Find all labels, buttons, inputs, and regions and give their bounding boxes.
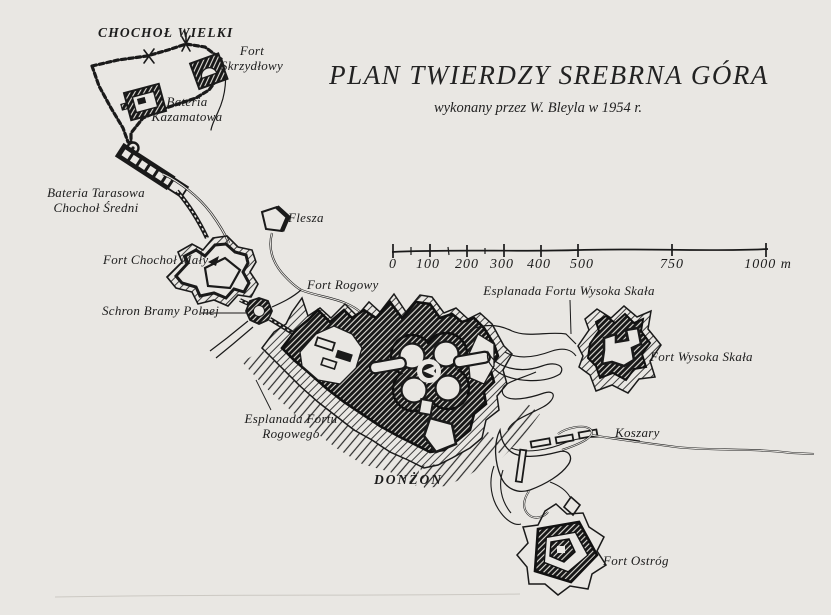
label-fort-rogowy: Fort Rogowy bbox=[307, 278, 379, 291]
fort-wysoka-skala-plan bbox=[578, 306, 661, 393]
label-fort-wysoka-skala: Fort Wysoka Skała bbox=[650, 350, 753, 363]
fort-ostrog-plan bbox=[491, 466, 606, 595]
scan-artifact-line bbox=[55, 594, 520, 597]
label-fort-skrzydlowy: Fort Skrzydłowy bbox=[221, 44, 283, 74]
barracks-building bbox=[556, 434, 574, 443]
scale-tick-500: 500 bbox=[570, 257, 594, 273]
scanned-map-page: PLAN TWIERDZY SREBRNA GÓRA wykonany prze… bbox=[0, 0, 831, 615]
label-bateria-tarasowa: Bateria Tarasowa Chochoł Średni bbox=[47, 186, 145, 216]
label-chochol-wielki: CHOCHOŁ WIELKI bbox=[98, 26, 233, 40]
scale-tick-1000: 1000 m bbox=[744, 257, 792, 273]
scale-tick-750: 750 bbox=[660, 257, 684, 273]
fort-rogowy-donzon-complex bbox=[242, 294, 540, 488]
esplanada-wysoka-leader bbox=[570, 300, 571, 334]
label-koszary: Koszary bbox=[615, 426, 660, 439]
scale-tick-100: 100 bbox=[416, 257, 440, 273]
south-caponier bbox=[419, 399, 433, 415]
label-schron-bramy-polnej: Schron Bramy Polnej bbox=[102, 304, 219, 317]
scale-tick-0: 0 bbox=[389, 257, 397, 273]
label-donzon: DONŻON bbox=[374, 473, 443, 487]
label-fort-chochol-maly: Fort Chochoł Mały bbox=[103, 253, 208, 266]
outwork-lunette bbox=[564, 497, 580, 515]
map-subtitle: wykonany przez W. Bleyla w 1954 r. bbox=[434, 100, 642, 117]
donzon-keep bbox=[391, 333, 469, 411]
label-esplanada-rogowego: Esplanada Fortu Rogowego bbox=[245, 412, 338, 442]
scale-tick-300: 300 bbox=[490, 257, 514, 273]
label-fort-ostrog: Fort Ostróg bbox=[603, 554, 669, 567]
scale-tick-200: 200 bbox=[455, 257, 479, 273]
barracks-building bbox=[531, 438, 551, 447]
label-flesza: Flesza bbox=[288, 211, 324, 224]
scale-tick-400: 400 bbox=[527, 257, 551, 273]
fort-chochol-maly-plan bbox=[167, 236, 258, 306]
label-bateria-kazamatowa: Bateria Kazamatowa bbox=[152, 95, 223, 125]
label-esplanada-wysoka-skala: Esplanada Fortu Wysoka Skała bbox=[483, 284, 655, 297]
scale-bar bbox=[392, 243, 768, 258]
map-title: PLAN TWIERDZY SREBRNA GÓRA bbox=[329, 60, 769, 91]
